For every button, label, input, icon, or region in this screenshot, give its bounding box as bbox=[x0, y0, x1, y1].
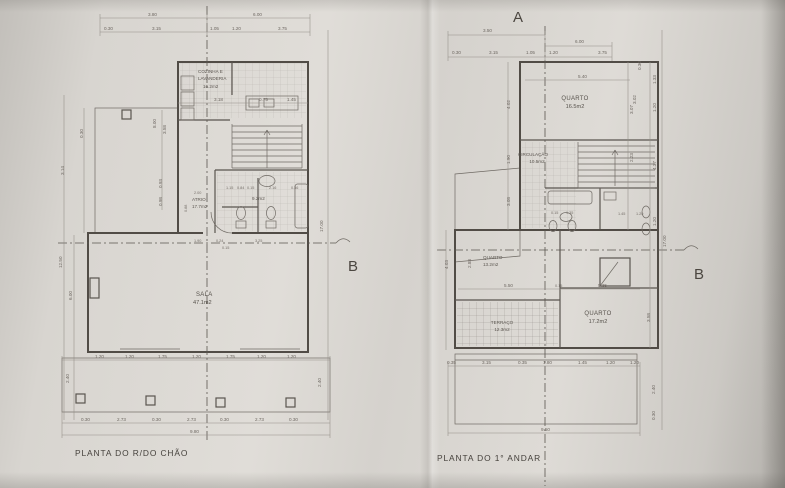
dim-label: 12.50 bbox=[58, 256, 63, 268]
dim-label: 1.20 bbox=[232, 26, 241, 31]
dim-label: 1.33 bbox=[652, 75, 657, 84]
terrace-tiles bbox=[62, 358, 330, 412]
dim-label: 1.20 bbox=[652, 103, 657, 112]
dim-label: 2.73 bbox=[117, 417, 126, 422]
dim-label: 2.00 bbox=[194, 191, 201, 195]
dim-label: 0.30 bbox=[220, 417, 229, 422]
dim-label: 1.20 bbox=[95, 354, 104, 359]
dim-label: 17.00 bbox=[319, 220, 324, 232]
dim-label: 0.35 bbox=[518, 360, 527, 365]
terrace-column bbox=[146, 396, 155, 405]
column bbox=[122, 110, 131, 119]
room-label-quarto2: QUARTO bbox=[483, 255, 503, 260]
ground-floor-plan: 3.80 6.00 0.30 3.15 1.05 1.20 3.75 12.50… bbox=[58, 6, 358, 458]
dim-label: 8.00 bbox=[152, 119, 157, 128]
dim-label: 2.40 bbox=[651, 385, 656, 394]
roof-hatch bbox=[455, 168, 520, 262]
dim-label: 5.35 bbox=[598, 283, 607, 288]
dim-label-total-width: 9.50 bbox=[541, 427, 550, 432]
dim-label: 1.80 bbox=[543, 360, 552, 365]
dim-label: 3.15 bbox=[152, 26, 161, 31]
dim-label: 3.58 bbox=[646, 313, 651, 322]
dim-label: 3.25 bbox=[255, 239, 262, 243]
dim-label: 1.20 bbox=[636, 212, 643, 216]
dim-label: 3.07 bbox=[629, 105, 634, 114]
dim-label: 2.40 bbox=[317, 378, 322, 387]
dim-label: 0.15 bbox=[247, 186, 254, 190]
dim-label: 1.90 bbox=[194, 239, 201, 243]
dim-label: 3.08 bbox=[506, 197, 511, 206]
dim-label: 6.00 bbox=[253, 12, 262, 17]
dim-label: 1.20 bbox=[652, 217, 657, 226]
room-label-atrio: ATRIO bbox=[192, 197, 206, 202]
dim-label: 6.00 bbox=[575, 39, 584, 44]
room-area-quarto3: 17.2m2 bbox=[589, 319, 608, 325]
dim-label: 2.40 bbox=[65, 374, 70, 383]
section-marker-a: A bbox=[513, 9, 523, 26]
dim-label: 3.75 bbox=[598, 50, 607, 55]
terrace-column bbox=[286, 398, 295, 407]
dim-label: 3.14 bbox=[60, 166, 65, 175]
dim-label: 0.36 bbox=[291, 186, 298, 190]
terrace-column bbox=[216, 398, 225, 407]
dim-label: 1.05 bbox=[526, 50, 535, 55]
dim-label: 4.03 bbox=[444, 260, 449, 269]
room-label-kitchen: LAVANDERIA bbox=[198, 76, 227, 81]
fireplace bbox=[90, 278, 99, 298]
terrace-column bbox=[76, 394, 85, 403]
dim-label: 0.30 bbox=[152, 417, 161, 422]
room-area-atrio: 17.7m2 bbox=[192, 204, 208, 209]
floorplan-drawing: 3.80 6.00 0.30 3.15 1.05 1.20 3.75 12.50… bbox=[0, 0, 785, 488]
dim-label: 0.15 bbox=[555, 284, 562, 288]
dim-label: 3.80 bbox=[148, 12, 157, 17]
dim-label: 1.20 bbox=[125, 354, 134, 359]
dim-label-total-width: 9.80 bbox=[190, 429, 199, 434]
photo-of-floor-plan-sheet: 3.80 6.00 0.30 3.15 1.05 1.20 3.75 12.50… bbox=[0, 0, 785, 488]
room-area-circulacao: 10.5m2 bbox=[529, 159, 545, 164]
sink-2 bbox=[604, 192, 616, 200]
staircase bbox=[232, 124, 302, 168]
dim-label: 1.20 bbox=[192, 354, 201, 359]
dim-label: 1.45 bbox=[578, 360, 587, 365]
dim-label: 4.02 bbox=[506, 100, 511, 109]
dim-label: 1.20 bbox=[606, 360, 615, 365]
dim-label: 3.58 bbox=[162, 125, 167, 134]
right-plan-title: PLANTA DO 1° ANDAR bbox=[437, 453, 541, 463]
dim-label: 2.16 bbox=[269, 186, 276, 190]
dim-label: 1.20 bbox=[630, 360, 639, 365]
room-label-kitchen: COZINHA E bbox=[198, 69, 223, 74]
staircase bbox=[578, 142, 655, 188]
room-area-bathroom: 9.2m2 bbox=[252, 196, 265, 201]
section-line-b-break bbox=[684, 246, 698, 250]
dim-label: 1.90 bbox=[506, 155, 511, 164]
dim-label: 3.02 bbox=[632, 95, 637, 104]
room-label-circulacao: CIRCULAÇÃO bbox=[518, 151, 549, 157]
dim-label: 0.30 bbox=[81, 417, 90, 422]
dim-label: 0.88 bbox=[184, 205, 188, 212]
dim-label: 1.20 bbox=[257, 354, 266, 359]
dim-label: 6.00 bbox=[68, 291, 73, 300]
dim-label: 3.15 bbox=[489, 50, 498, 55]
room-label-quarto1: QUARTO bbox=[561, 96, 588, 102]
dim-label: 2.73 bbox=[255, 417, 264, 422]
dim-label: 1.15 bbox=[226, 186, 233, 190]
dim-label: 2.73 bbox=[187, 417, 196, 422]
left-plan-title: PLANTA DO R/DO CHÃO bbox=[75, 448, 188, 458]
dim-label: 5.40 bbox=[578, 74, 587, 79]
dim-label: 3.50 bbox=[483, 28, 492, 33]
dim-label: 4.37 bbox=[652, 161, 657, 170]
dim-label: 0.35 bbox=[447, 360, 456, 365]
dim-label: 0.30 bbox=[104, 26, 113, 31]
room-area-sala: 47.1m2 bbox=[193, 300, 212, 306]
dim-label: 0.30 bbox=[651, 411, 656, 420]
dim-label: 1.35 bbox=[566, 211, 573, 215]
dim-label: 3.15 bbox=[482, 360, 491, 365]
dim-label: 0.15 bbox=[551, 211, 558, 215]
dim-label: 1.75 bbox=[158, 354, 167, 359]
dim-label: 0.15 bbox=[222, 246, 229, 250]
dim-label: 5.50 bbox=[504, 283, 513, 288]
dim-label: 0.84 bbox=[237, 186, 244, 190]
dim-label: 0.30 bbox=[289, 417, 298, 422]
closet bbox=[600, 258, 630, 286]
dim-label: 1.20 bbox=[549, 50, 558, 55]
dim-label: 1.75 bbox=[226, 354, 235, 359]
room-label-terraco: TERRAÇO bbox=[491, 320, 514, 325]
dim-label: 0.75 bbox=[259, 97, 268, 102]
dim-label: 0.24 bbox=[216, 239, 223, 243]
room-area-quarto1: 16.5m2 bbox=[566, 104, 585, 110]
dimension-lines-right-plan bbox=[446, 30, 662, 436]
section-line-b-break bbox=[336, 239, 350, 243]
room-area-terraco: 12.3m2 bbox=[494, 327, 510, 332]
first-floor-plan: 3.50 6.00 0.30 3.15 1.05 1.20 3.75 5.40 … bbox=[437, 9, 704, 486]
dim-label: 0.30 bbox=[637, 61, 642, 70]
dim-label: 1.05 bbox=[210, 26, 219, 31]
dim-label: 3.75 bbox=[278, 26, 287, 31]
dim-label: 2.88 bbox=[467, 259, 472, 268]
dim-label: 1.20 bbox=[287, 354, 296, 359]
dim-label: 0.98 bbox=[158, 197, 163, 206]
dim-label: 17.00 bbox=[662, 235, 667, 247]
dim-label: 1.45 bbox=[618, 212, 625, 216]
room-label-sala: SALA bbox=[196, 292, 213, 298]
section-marker-b-right: B bbox=[694, 266, 704, 283]
section-marker-b-left: B bbox=[348, 258, 358, 275]
dim-label: 1.45 bbox=[287, 97, 296, 102]
dim-label: 0.93 bbox=[158, 179, 163, 188]
bath-tiles bbox=[217, 172, 306, 231]
room-area-kitchen: 16.2m2 bbox=[203, 84, 219, 89]
dim-label: 3.18 bbox=[214, 97, 223, 102]
dim-label: 0.30 bbox=[452, 50, 461, 55]
room-label-quarto3: QUARTO bbox=[584, 311, 611, 317]
dim-label: 0.30 bbox=[79, 129, 84, 138]
dim-label: 2.23 bbox=[629, 153, 634, 162]
room-area-quarto2: 13.2m2 bbox=[483, 262, 499, 267]
